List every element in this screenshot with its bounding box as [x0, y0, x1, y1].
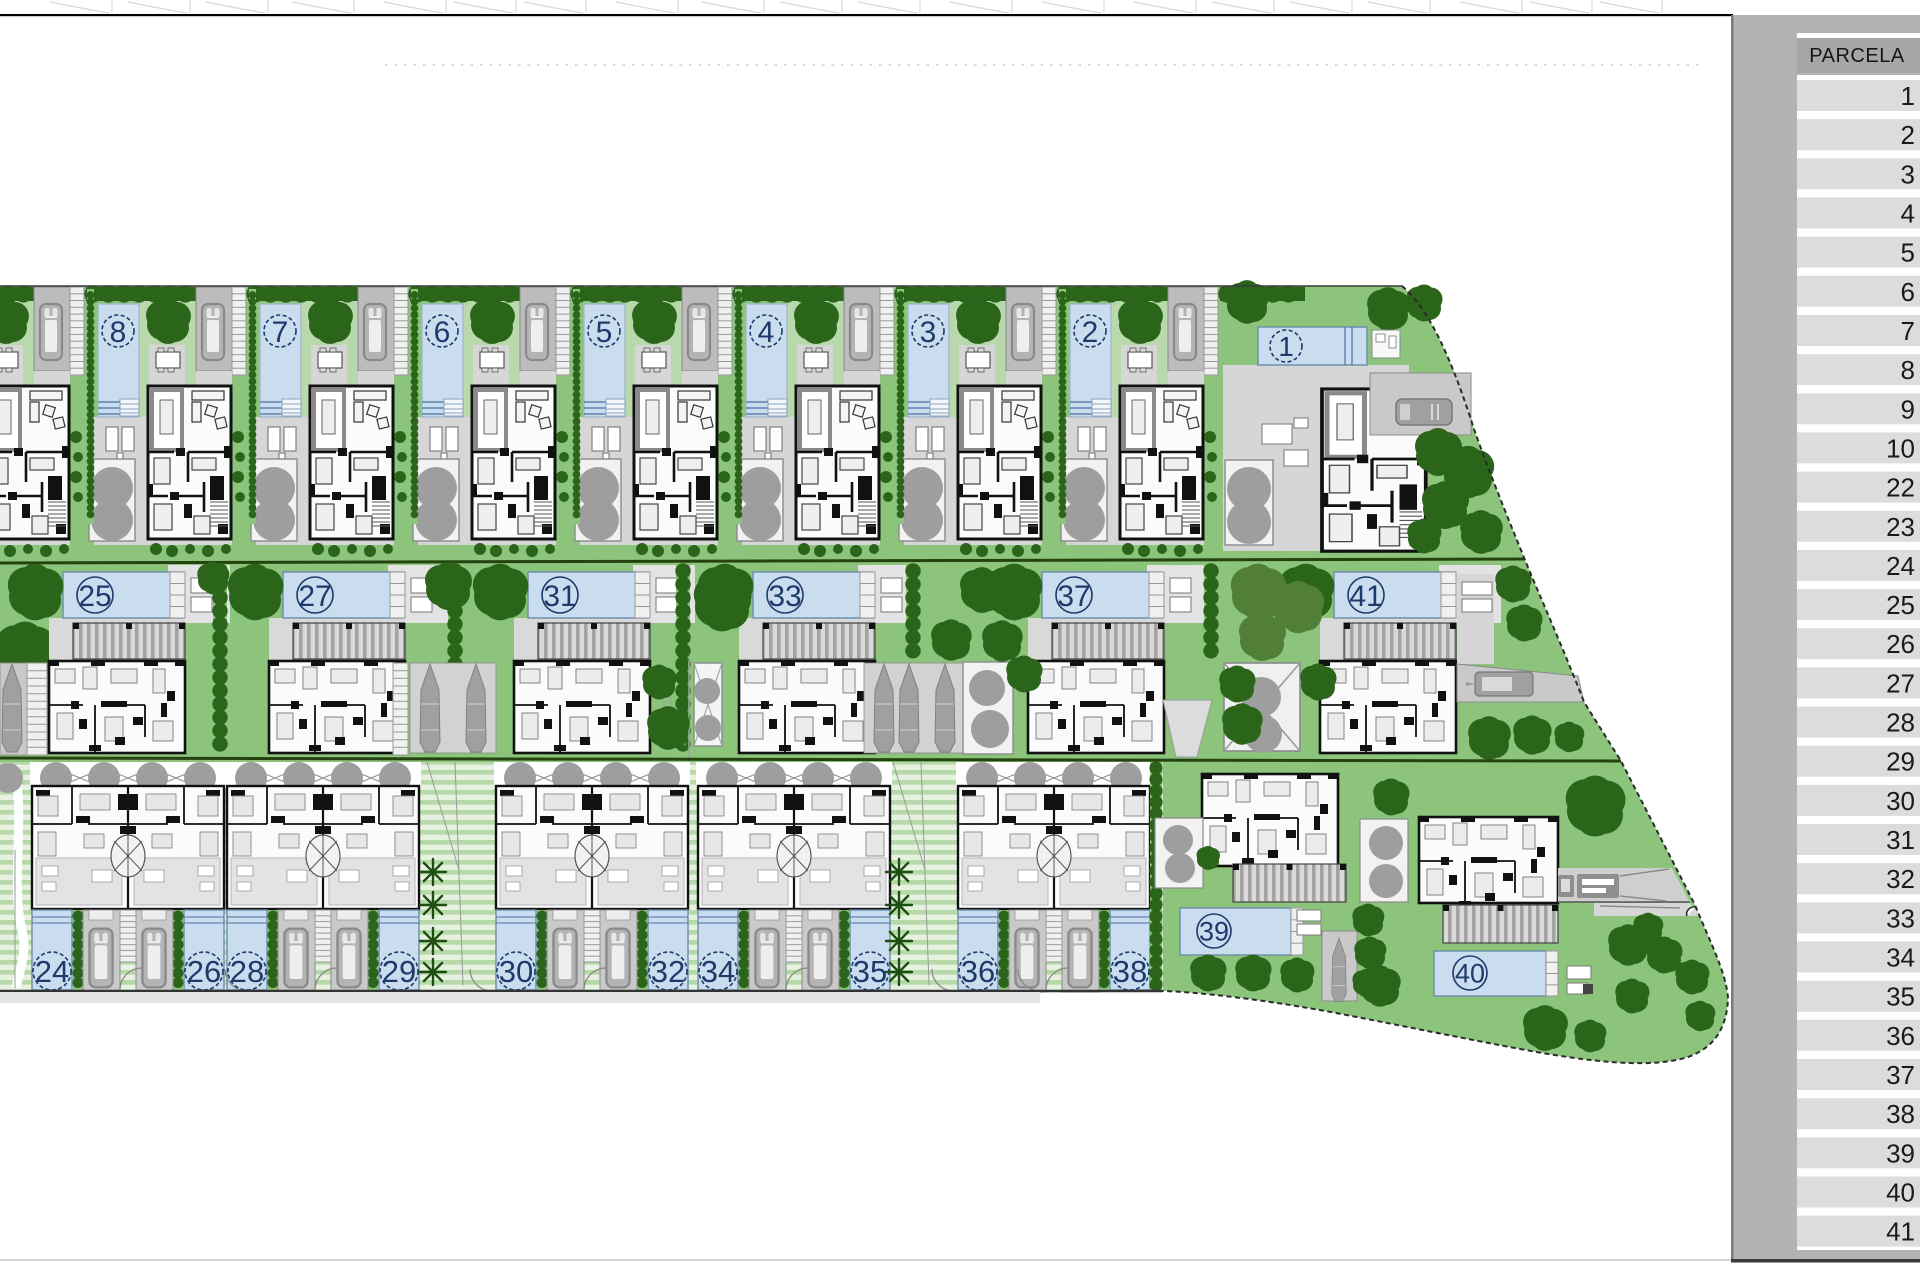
svg-text:25: 25: [78, 580, 111, 613]
svg-text:1: 1: [1278, 331, 1294, 362]
svg-text:34: 34: [1886, 943, 1915, 973]
svg-text:8: 8: [1901, 355, 1915, 385]
svg-text:41: 41: [1349, 580, 1382, 613]
svg-text:38: 38: [1113, 954, 1147, 989]
svg-text:7: 7: [272, 316, 289, 349]
svg-text:6: 6: [1901, 277, 1915, 307]
svg-text:4: 4: [758, 316, 775, 349]
svg-text:35: 35: [1886, 982, 1915, 1012]
svg-text:37: 37: [1886, 1060, 1915, 1090]
svg-text:5: 5: [596, 316, 613, 349]
svg-text:33: 33: [768, 580, 801, 613]
svg-text:7: 7: [1901, 316, 1915, 346]
svg-text:26: 26: [1886, 629, 1915, 659]
svg-text:33: 33: [1886, 903, 1915, 933]
svg-text:29: 29: [382, 954, 416, 989]
svg-text:9: 9: [1901, 394, 1915, 424]
svg-text:4: 4: [1901, 199, 1915, 229]
svg-text:24: 24: [1886, 551, 1915, 581]
svg-text:27: 27: [1886, 668, 1915, 698]
svg-text:32: 32: [1886, 864, 1915, 894]
svg-text:28: 28: [1886, 708, 1915, 738]
svg-text:PARCELA: PARCELA: [1809, 45, 1905, 67]
svg-text:30: 30: [1886, 786, 1915, 816]
svg-text:10: 10: [1886, 433, 1915, 463]
svg-text:40: 40: [1886, 1178, 1915, 1208]
svg-text:28: 28: [230, 954, 264, 989]
svg-text:39: 39: [1886, 1138, 1915, 1168]
svg-text:40: 40: [1455, 959, 1485, 989]
svg-text:23: 23: [1886, 512, 1915, 542]
svg-text:39: 39: [1199, 917, 1229, 947]
svg-text:31: 31: [543, 580, 576, 613]
svg-text:41: 41: [1886, 1217, 1915, 1247]
svg-text:26: 26: [187, 954, 221, 989]
svg-text:1: 1: [1901, 81, 1915, 111]
svg-text:36: 36: [961, 954, 995, 989]
svg-text:27: 27: [298, 580, 331, 613]
svg-text:2: 2: [1901, 120, 1915, 150]
svg-text:6: 6: [434, 316, 451, 349]
svg-text:24: 24: [35, 954, 69, 989]
svg-text:37: 37: [1057, 580, 1090, 613]
svg-text:35: 35: [853, 954, 887, 989]
svg-text:8: 8: [110, 316, 127, 349]
svg-text:2: 2: [1082, 316, 1099, 349]
svg-text:29: 29: [1886, 747, 1915, 777]
svg-text:30: 30: [499, 954, 533, 989]
svg-text:32: 32: [651, 954, 685, 989]
svg-text:3: 3: [1901, 159, 1915, 189]
svg-text:31: 31: [1886, 825, 1915, 855]
svg-text:25: 25: [1886, 590, 1915, 620]
svg-text:38: 38: [1886, 1099, 1915, 1129]
svg-text:3: 3: [920, 316, 937, 349]
svg-text:5: 5: [1901, 238, 1915, 268]
svg-text:22: 22: [1886, 473, 1915, 503]
svg-text:36: 36: [1886, 1021, 1915, 1051]
svg-text:34: 34: [701, 954, 735, 989]
